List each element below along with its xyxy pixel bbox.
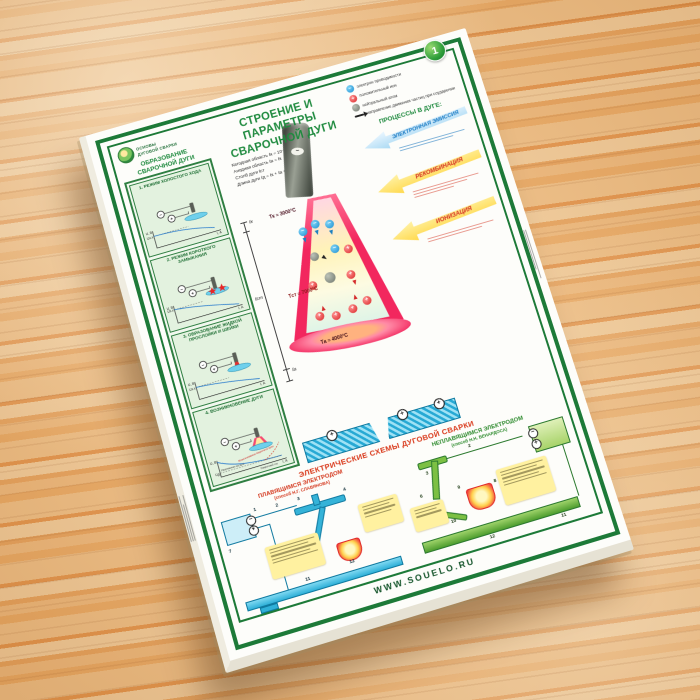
svg-text:U, В: U, В	[210, 460, 218, 466]
dim-cathode-label: ℓк	[249, 220, 254, 226]
welding-arc	[465, 482, 498, 512]
dim-column-label: ℓст	[255, 296, 264, 303]
electron-icon: −	[345, 84, 355, 93]
svg-text:Uх.х: Uх.х	[167, 308, 175, 314]
legend-box	[409, 499, 449, 533]
dim-anode-label: ℓа	[292, 367, 297, 373]
svg-text:Сварочный ток: Сварочный ток	[260, 462, 279, 470]
particle-legend: − электрон проводимости + положительный …	[345, 57, 459, 119]
electrode-polarity: −	[291, 147, 304, 155]
wooden-table-background: { "header": { "badge": "1", "brand_line1…	[0, 0, 700, 700]
legend-box	[495, 455, 556, 505]
svg-text:I, А: I, А	[260, 381, 267, 386]
direction-arrow-icon	[355, 114, 365, 118]
welding-poster: 1 ОСНОВЫ ДУГОВОЙ СВАРКИ ОБРАЗОВАНИЕ СВАР…	[79, 28, 634, 673]
poster-outer-frame: ОСНОВЫ ДУГОВОЙ СВАРКИ ОБРАЗОВАНИЕ СВАРОЧ…	[95, 37, 620, 650]
neutral-atom-icon	[351, 103, 361, 112]
legend-box	[357, 494, 404, 533]
svg-text:I, А: I, А	[282, 458, 289, 464]
svg-text:Uх.х: Uх.х	[146, 235, 154, 241]
svg-text:I, А: I, А	[216, 230, 223, 235]
fine-print	[178, 495, 195, 542]
svg-text:Uх.х: Uх.х	[189, 386, 197, 392]
svg-text:Uд: Uд	[215, 472, 220, 477]
nonconsumable-electrode	[431, 461, 440, 500]
positive-ion-icon: +	[348, 94, 358, 103]
svg-text:I, А: I, А	[238, 304, 245, 309]
